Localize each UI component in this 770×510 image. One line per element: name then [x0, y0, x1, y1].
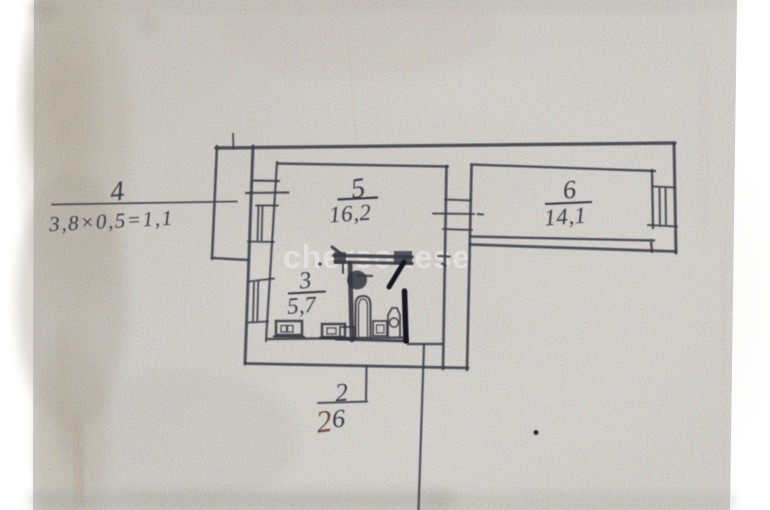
svg-text:16,2: 16,2	[328, 200, 372, 228]
svg-text:6: 6	[331, 404, 346, 434]
svg-text:5,7: 5,7	[286, 292, 318, 319]
svg-text:3: 3	[297, 268, 313, 295]
svg-text:14,1: 14,1	[543, 203, 587, 231]
